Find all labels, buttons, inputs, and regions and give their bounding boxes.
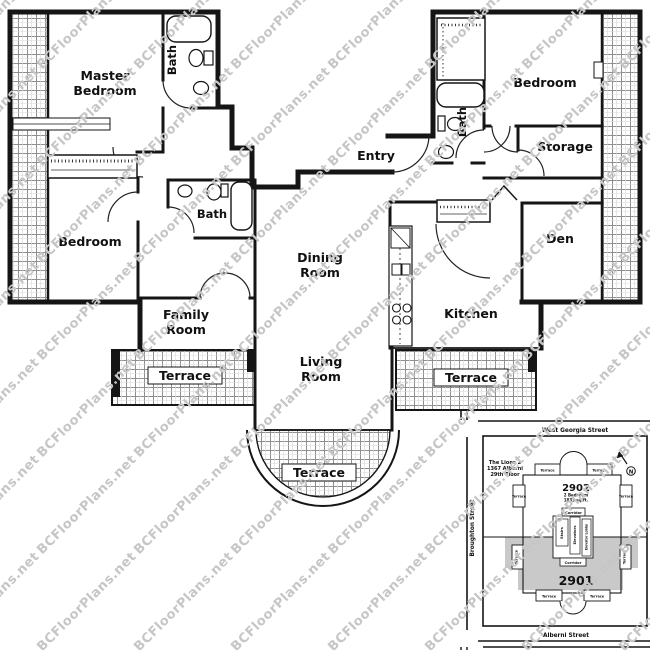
street-west-georgia: West Georgia Street: [542, 428, 609, 434]
label-living-1: Living: [300, 354, 343, 369]
svg-text:Terrace: Terrace: [590, 595, 605, 599]
center-bath-fixtures: [178, 182, 252, 230]
kitchen-sink-icon: [392, 264, 401, 275]
label-den: Den: [546, 231, 574, 246]
site-plan-inset: West Georgia Street Broughton Street Alb…: [461, 411, 650, 650]
label-dining-1: Dining: [297, 250, 343, 265]
terrace-strip-left: [10, 12, 48, 302]
unit-2902-area: 1833 sq.ft.: [564, 498, 589, 503]
elevators-label: Elevators: [573, 526, 577, 545]
toilet-tank-icon: [438, 116, 445, 131]
label-family-2: Room: [166, 322, 206, 337]
toilet-icon: [207, 184, 221, 200]
svg-text:Terrace: Terrace: [542, 595, 557, 599]
bathtub-icon: [437, 83, 484, 107]
label-bath-master: Bath: [165, 45, 179, 75]
street-broughton: Broughton Street: [470, 499, 476, 556]
street-alberni: Alberni Street: [543, 633, 589, 639]
sink-icon: [178, 185, 192, 197]
bathtub-icon: [231, 182, 252, 230]
label-kitchen: Kitchen: [444, 306, 498, 321]
svg-text:Terrace: Terrace: [515, 549, 519, 564]
bathtub-icon: [167, 16, 211, 42]
window-seat-left: [13, 118, 110, 130]
label-terrace-right: Terrace: [445, 370, 497, 385]
label-terrace-left: Terrace: [159, 368, 211, 383]
outer-walls: [10, 12, 640, 350]
building-name-3: 29th Floor: [490, 472, 520, 478]
corridor-top-label: Corridor: [565, 511, 582, 515]
label-storage: Storage: [537, 139, 593, 154]
label-terrace-center: Terrace: [293, 465, 345, 480]
label-dining-2: Room: [300, 265, 340, 280]
svg-text:Terrace: Terrace: [512, 495, 527, 499]
corridor-bottom-label: Corridor: [565, 561, 582, 565]
label-family-1: Family: [163, 307, 209, 322]
sink-icon: [194, 82, 209, 95]
label-bedroom-left: Bedroom: [58, 234, 121, 249]
svg-text:Terrace: Terrace: [592, 469, 607, 473]
north-label: N: [629, 469, 634, 475]
elevator-lobby-label: Elevator Lobby: [585, 524, 589, 550]
unit-2901-number: 2901: [559, 573, 594, 588]
label-master-bedroom-1: Master: [81, 68, 131, 83]
label-bath-right: Bath: [455, 107, 469, 137]
label-entry: Entry: [357, 148, 395, 163]
floorplan-drawing: Master Bedroom Bath Bedroom Bath Entry B…: [0, 0, 650, 650]
kitchen-counter: [389, 226, 412, 346]
closet-right: [437, 18, 485, 80]
kitchen-closet: [437, 200, 490, 222]
sink-icon: [439, 146, 454, 159]
label-bath-center: Bath: [197, 207, 227, 221]
svg-text:Terrace: Terrace: [623, 549, 627, 564]
toilet-icon: [189, 50, 203, 67]
svg-text:Terrace: Terrace: [540, 469, 555, 473]
floorplan-page: Master Bedroom Bath Bedroom Bath Entry B…: [0, 0, 650, 650]
label-master-bedroom-2: Bedroom: [73, 83, 136, 98]
kitchen-sink-icon: [402, 264, 410, 275]
toilet-tank-icon: [204, 51, 213, 65]
label-bedroom-right: Bedroom: [513, 75, 576, 90]
stairs-label: Stairs: [560, 527, 564, 539]
wardrobe-left: [48, 155, 137, 178]
svg-text:Terrace: Terrace: [619, 495, 634, 499]
den-door-icon: [492, 186, 517, 200]
label-living-2: Room: [301, 369, 341, 384]
toilet-tank-icon: [221, 184, 228, 197]
terrace-strip-right: [594, 12, 640, 302]
